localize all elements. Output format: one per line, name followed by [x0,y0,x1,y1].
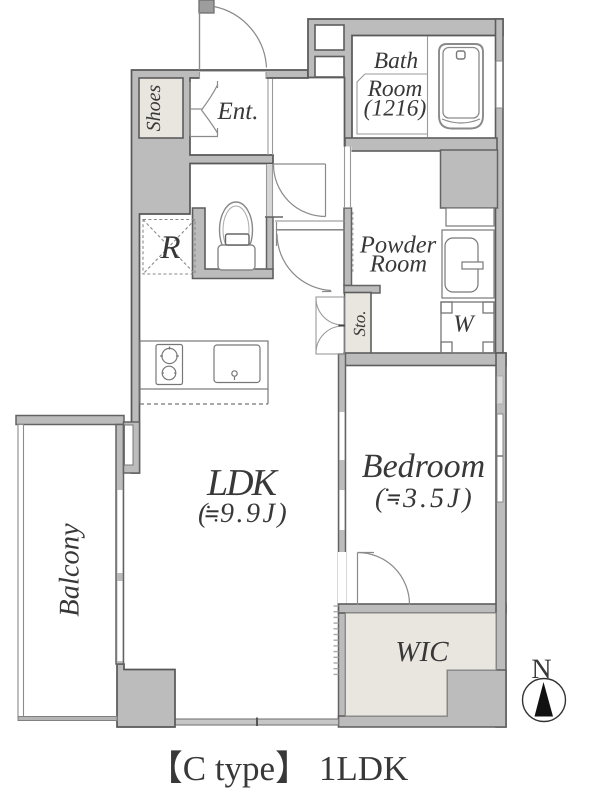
svg-text:Shoes: Shoes [143,84,165,131]
svg-text:Bedroom: Bedroom [362,448,485,485]
svg-text:WIC: WIC [395,636,449,668]
svg-text:(1216): (1216) [364,96,427,122]
svg-text:Bath: Bath [374,48,418,74]
svg-text:9.9J): 9.9J) [220,498,289,529]
svg-text:Balcony: Balcony [55,523,86,617]
svg-text:N: N [531,654,551,685]
svg-text:Room: Room [369,251,427,278]
svg-text:【C type】 1LDK: 【C type】 1LDK [148,749,409,788]
svg-text:Ent.: Ent. [217,98,259,125]
svg-text:W: W [453,311,476,338]
svg-text:Sto.: Sto. [350,311,369,337]
svg-text:3.5J): 3.5J) [402,483,475,514]
svg-text:R: R [159,230,180,266]
